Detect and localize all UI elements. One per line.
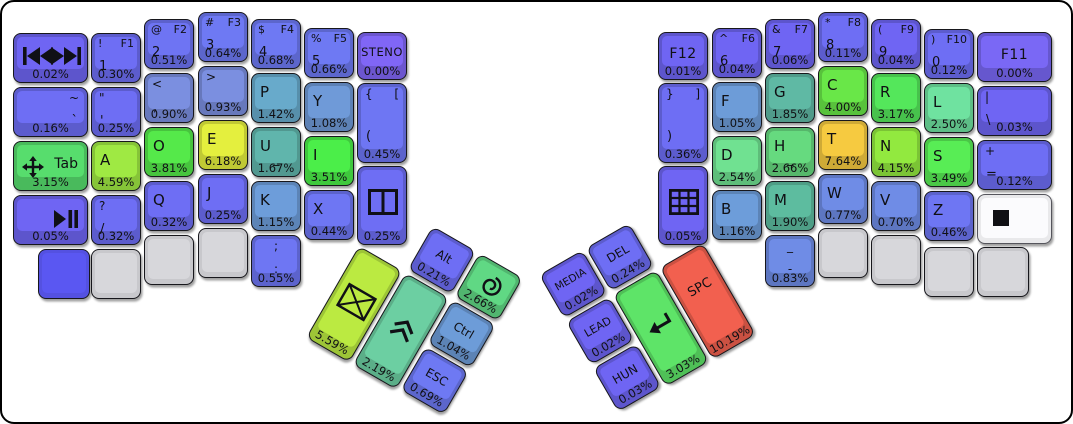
key-5-shift-label: % (311, 33, 321, 44)
key-white-square[interactable] (977, 194, 1052, 244)
key-n-label: N (880, 139, 891, 154)
key-s-label: S (933, 149, 943, 164)
key-h[interactable]: H_2.66% (765, 127, 815, 177)
key-backslash-cap (981, 90, 1048, 123)
key-0[interactable]: )F1000.12% (924, 29, 974, 79)
key-f[interactable]: F1.05% (712, 82, 762, 132)
key-backslash[interactable]: |\0.03% (977, 86, 1052, 136)
key-steno[interactable]: STENO0.00% (357, 32, 407, 80)
key-5-percent: 0.66% (305, 64, 353, 76)
key-g-label: G (774, 85, 786, 100)
key-p[interactable]: P1.42% (251, 73, 301, 123)
key-blank-bottom-left-cap (42, 253, 86, 294)
key-paren-right-fn-label: ] (695, 88, 700, 100)
key-b[interactable]: B1.16% (712, 190, 762, 240)
key-backslash-percent: 0.03% (978, 122, 1051, 134)
key-6-percent: 0.04% (713, 64, 761, 76)
key-1-fn-label: F1 (121, 38, 134, 49)
key-5-fn-label: F5 (334, 33, 347, 44)
key-s-percent: 3.49% (925, 173, 973, 185)
play-pause-icon (54, 210, 78, 228)
key-i-percent: 3.51% (305, 172, 353, 184)
key-l-percent: 2.50% (925, 119, 973, 131)
key-e-label: E (207, 132, 216, 147)
key-7-shift-label: & (772, 24, 781, 35)
key-blank-3[interactable] (198, 228, 248, 278)
key-d[interactable]: D2.54% (712, 136, 762, 186)
key-blank-2[interactable] (144, 235, 194, 285)
key-2[interactable]: @F220.51% (144, 19, 194, 69)
key-l[interactable]: L2.50% (924, 83, 974, 133)
key-c-label: C (827, 78, 837, 93)
key-paren-right-shift-label: } (666, 88, 674, 100)
key-white-square-cap (981, 198, 1048, 239)
key-blank-5[interactable] (871, 235, 921, 285)
key-t[interactable]: T7.64% (818, 120, 868, 170)
key-blank-7-cap (981, 251, 1025, 292)
key-3-percent: 0.64% (199, 48, 247, 60)
key-blank-1[interactable] (91, 249, 141, 299)
key-9-fn-label: F9 (901, 24, 914, 35)
key-play-pause[interactable]: 0.05% (13, 195, 88, 245)
key-tab[interactable]: Tab3.15% (13, 141, 88, 191)
key-blank-4[interactable] (818, 228, 868, 278)
key-0-percent: 0.12% (925, 65, 973, 77)
key-3-fn-label: F3 (228, 17, 241, 28)
key-steno-label: STENO (358, 47, 406, 59)
key-quote-percent: 0.25% (92, 123, 140, 135)
key-period-shift-label: > (206, 71, 216, 83)
key-prev-next-track[interactable]: 0.02% (13, 33, 88, 83)
key-j-percent: 0.25% (199, 210, 247, 222)
key-o[interactable]: O3.81% (144, 127, 194, 177)
key-f12-percent: 0.01% (659, 66, 707, 78)
key-semicolon[interactable]: ;:0.55% (251, 235, 301, 287)
key-j[interactable]: J0.25% (198, 174, 248, 224)
key-z[interactable]: Z0.46% (924, 191, 974, 241)
key-p-percent: 1.42% (252, 109, 300, 121)
key-c-percent: 4.00% (819, 102, 867, 114)
key-1-shift-label: ! (98, 38, 102, 49)
key-8[interactable]: *F880.11% (818, 12, 868, 62)
key-minus-shift-label: _ (766, 240, 814, 252)
key-0-shift-label: ) (931, 34, 935, 45)
key-9-percent: 0.04% (872, 55, 920, 67)
key-semicolon-percent: 0.55% (252, 273, 300, 285)
key-s[interactable]: S3.49% (924, 137, 974, 187)
key-d-percent: 2.54% (713, 172, 761, 184)
key-paren-left-fn-label: [ (394, 88, 399, 100)
key-p-label: P (260, 85, 269, 100)
key-4[interactable]: $F440.68% (251, 19, 301, 69)
key-period-percent: 0.93% (199, 102, 247, 114)
key-7[interactable]: &F770.06% (765, 19, 815, 69)
key-v-percent: 0.70% (872, 217, 920, 229)
key-paren-left-shift-label: { (365, 88, 373, 100)
key-paren-left-label: ( (366, 130, 371, 143)
key-play-pause-percent: 0.05% (14, 231, 87, 243)
key-o-label: O (153, 139, 165, 154)
key-l-label: L (933, 95, 941, 110)
key-4-fn-label: F4 (281, 24, 294, 35)
key-m[interactable]: M1.90% (765, 181, 815, 231)
key-v-label: V (880, 193, 890, 208)
key-3-shift-label: # (205, 17, 214, 28)
key-quote[interactable]: "'0.25% (91, 87, 141, 137)
key-2-fn-label: F2 (174, 24, 187, 35)
key-minus[interactable]: _-0.83% (765, 235, 815, 287)
key-6-shift-label: ^ (719, 33, 728, 44)
key-6-fn-label: F6 (742, 33, 755, 44)
key-0-fn-label: F10 (947, 34, 967, 45)
key-tab-label: Tab (54, 157, 78, 171)
key-q-label: Q (153, 193, 165, 208)
key-d-label: D (721, 148, 733, 163)
key-x[interactable]: X0.44% (304, 190, 354, 240)
keyboard-heatmap: 0.02%~`0.16%Tab3.15%0.05%!F110.30%"'0.25… (0, 0, 1073, 424)
key-quote-shift-label: " (99, 92, 105, 104)
key-f12-label: F12 (659, 47, 707, 61)
key-1-percent: 0.30% (92, 69, 140, 81)
key-x-label: X (313, 202, 323, 217)
blacksquare-icon (993, 210, 1009, 226)
key-n-percent: 4.15% (872, 163, 920, 175)
key-f12[interactable]: F120.01% (658, 32, 708, 80)
key-r-label: R (880, 85, 890, 100)
key-z-percent: 0.46% (925, 227, 973, 239)
key-t-percent: 7.64% (819, 156, 867, 168)
key-tilde-grave[interactable]: ~`0.16% (13, 87, 88, 137)
key-i[interactable]: I3.51% (304, 136, 354, 186)
key-h-label: H (774, 139, 785, 154)
key-slash-percent: 0.32% (92, 231, 140, 243)
key-blank-4-cap (822, 232, 864, 273)
key-f11[interactable]: F110.00% (977, 32, 1052, 82)
key-7-fn-label: F7 (795, 24, 808, 35)
key-x-percent: 0.44% (305, 226, 353, 238)
key-c[interactable]: C4.00% (818, 66, 868, 116)
key-r-percent: 3.17% (872, 109, 920, 121)
key-q[interactable]: Q0.32% (144, 181, 194, 231)
key-w-label: W (827, 186, 842, 201)
key-8-shift-label: * (825, 17, 831, 28)
key-e[interactable]: E6.18% (198, 120, 248, 170)
key-m-percent: 1.90% (766, 217, 814, 229)
key-minus-percent: 0.83% (766, 273, 814, 285)
key-comma-shift-label: < (152, 78, 162, 90)
key-o-percent: 3.81% (145, 163, 193, 175)
key-y[interactable]: Y1.08% (304, 82, 354, 132)
key-6[interactable]: ^F660.04% (712, 28, 762, 78)
key-tab-percent: 3.15% (14, 177, 87, 189)
key-comma-percent: 0.90% (145, 109, 193, 121)
key-slash-shift-label: ? (99, 200, 105, 212)
key-blank-7[interactable] (977, 247, 1029, 297)
key-paren-left-percent: 0.45% (358, 149, 406, 161)
key-blank-6-cap (928, 251, 970, 292)
key-m-label: M (774, 193, 787, 208)
key-prev-next-track-percent: 0.02% (14, 69, 87, 81)
key-5[interactable]: %F550.66% (304, 28, 354, 78)
prev-next-icon (23, 47, 81, 65)
key-y-label: Y (313, 94, 322, 109)
key-period[interactable]: >.0.93% (198, 66, 248, 116)
key-equals-percent: 0.12% (978, 176, 1051, 188)
key-f11-label: F11 (978, 48, 1051, 62)
key-k[interactable]: K1.15% (251, 181, 301, 231)
key-a-label: A (100, 153, 110, 168)
key-g[interactable]: G1.85% (765, 73, 815, 123)
key-blank-5-cap (875, 239, 917, 280)
key-n[interactable]: N4.15% (871, 127, 921, 177)
key-4-percent: 0.68% (252, 55, 300, 67)
key-semicolon-shift-label: ; (252, 240, 300, 252)
key-blank-6[interactable] (924, 247, 974, 297)
key-e-percent: 6.18% (199, 156, 247, 168)
key-9-shift-label: ( (878, 24, 882, 35)
key-f-percent: 1.05% (713, 118, 761, 130)
key-8-fn-label: F8 (848, 17, 861, 28)
key-tilde-grave-shift-label: ~ (69, 92, 79, 104)
key-4-shift-label: $ (258, 24, 265, 35)
key-blank-3-cap (202, 232, 244, 273)
key-slash[interactable]: ?/0.32% (91, 195, 141, 245)
key-w-percent: 0.77% (819, 210, 867, 222)
key-z-label: Z (933, 203, 943, 218)
key-blank-1-cap (95, 253, 137, 294)
key-b-percent: 1.16% (713, 226, 761, 238)
key-backslash-shift-label: | (985, 91, 989, 103)
key-u-label: U (260, 139, 271, 154)
key-t-label: T (827, 132, 836, 147)
key-h-percent: 2.66% (766, 163, 814, 175)
key-tilde-grave-percent: 0.16% (14, 123, 87, 135)
key-9[interactable]: (F990.04% (871, 19, 921, 69)
key-b-label: B (721, 202, 731, 217)
key-v[interactable]: V0.70% (871, 181, 921, 231)
key-f11-percent: 0.00% (978, 68, 1051, 80)
key-paren-right-percent: 0.36% (659, 149, 707, 161)
key-a-percent: 4.59% (92, 177, 140, 189)
key-paren-left[interactable]: {[(0.45% (357, 83, 407, 163)
key-2-percent: 0.51% (145, 55, 193, 67)
key-q-percent: 0.32% (145, 217, 193, 229)
key-1[interactable]: !F110.30% (91, 33, 141, 83)
key-a[interactable]: A4.59% (91, 141, 141, 191)
key-equals[interactable]: +=0.12% (977, 140, 1052, 190)
key-j-label: J (207, 186, 211, 201)
key-blank-2-cap (148, 239, 190, 280)
key-f-label: F (721, 94, 730, 109)
key-7-percent: 0.06% (766, 55, 814, 67)
key-3[interactable]: #F330.64% (198, 12, 248, 62)
key-paren-right-label: ) (667, 130, 672, 143)
key-y-percent: 1.08% (305, 118, 353, 130)
key-u[interactable]: U_1.67% (251, 127, 301, 177)
key-2-shift-label: @ (151, 24, 162, 35)
key-8-percent: 0.11% (819, 48, 867, 60)
key-k-label: K (260, 193, 270, 208)
key-comma[interactable]: <,0.90% (144, 73, 194, 123)
key-blank-bottom-left[interactable] (38, 249, 90, 299)
key-steno-percent: 0.00% (358, 66, 406, 78)
key-equals-shift-label: + (985, 145, 995, 157)
key-i-label: I (313, 148, 317, 163)
key-g-percent: 1.85% (766, 109, 814, 121)
key-u-percent: 1.67% (252, 163, 300, 175)
key-paren-right[interactable]: }])0.36% (658, 83, 708, 163)
key-k-percent: 1.15% (252, 217, 300, 229)
key-r[interactable]: R3.17% (871, 73, 921, 123)
key-w[interactable]: W0.77% (818, 174, 868, 224)
